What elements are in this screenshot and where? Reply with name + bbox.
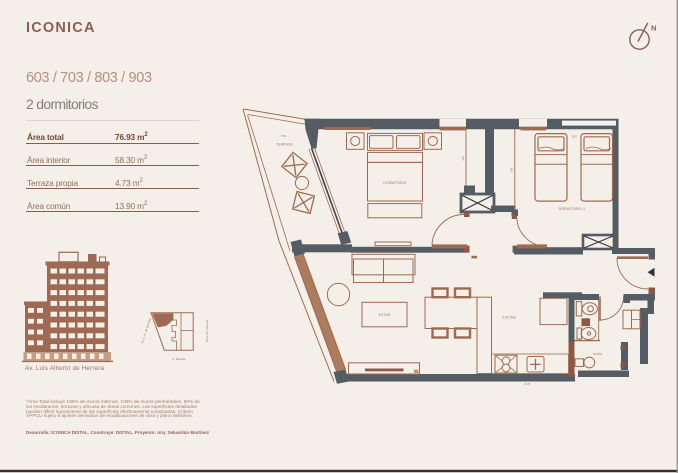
svg-text:D02: D02 xyxy=(572,135,578,138)
svg-text:300: 300 xyxy=(462,155,465,160)
svg-text:215: 215 xyxy=(524,382,530,386)
svg-text:ESTAR: ESTAR xyxy=(379,313,391,317)
svg-text:DORMITORIO 2: DORMITORIO 2 xyxy=(559,207,585,211)
svg-text:Av. L. A. de Herrera: Av. L. A. de Herrera xyxy=(140,317,152,344)
svg-text:José de Herrera: José de Herrera xyxy=(205,320,209,342)
svg-text:BAÑO: BAÑO xyxy=(594,351,604,356)
svg-text:TERRAZA: TERRAZA xyxy=(276,142,293,146)
svg-text:DORMITORIO: DORMITORIO xyxy=(383,181,406,185)
svg-text:COCINA: COCINA xyxy=(502,315,517,319)
svg-text:306: 306 xyxy=(511,167,514,172)
svg-text:T03: T03 xyxy=(281,135,286,138)
svg-text:N: N xyxy=(651,24,656,33)
svg-text:F. Reusté: F. Reusté xyxy=(172,357,185,361)
